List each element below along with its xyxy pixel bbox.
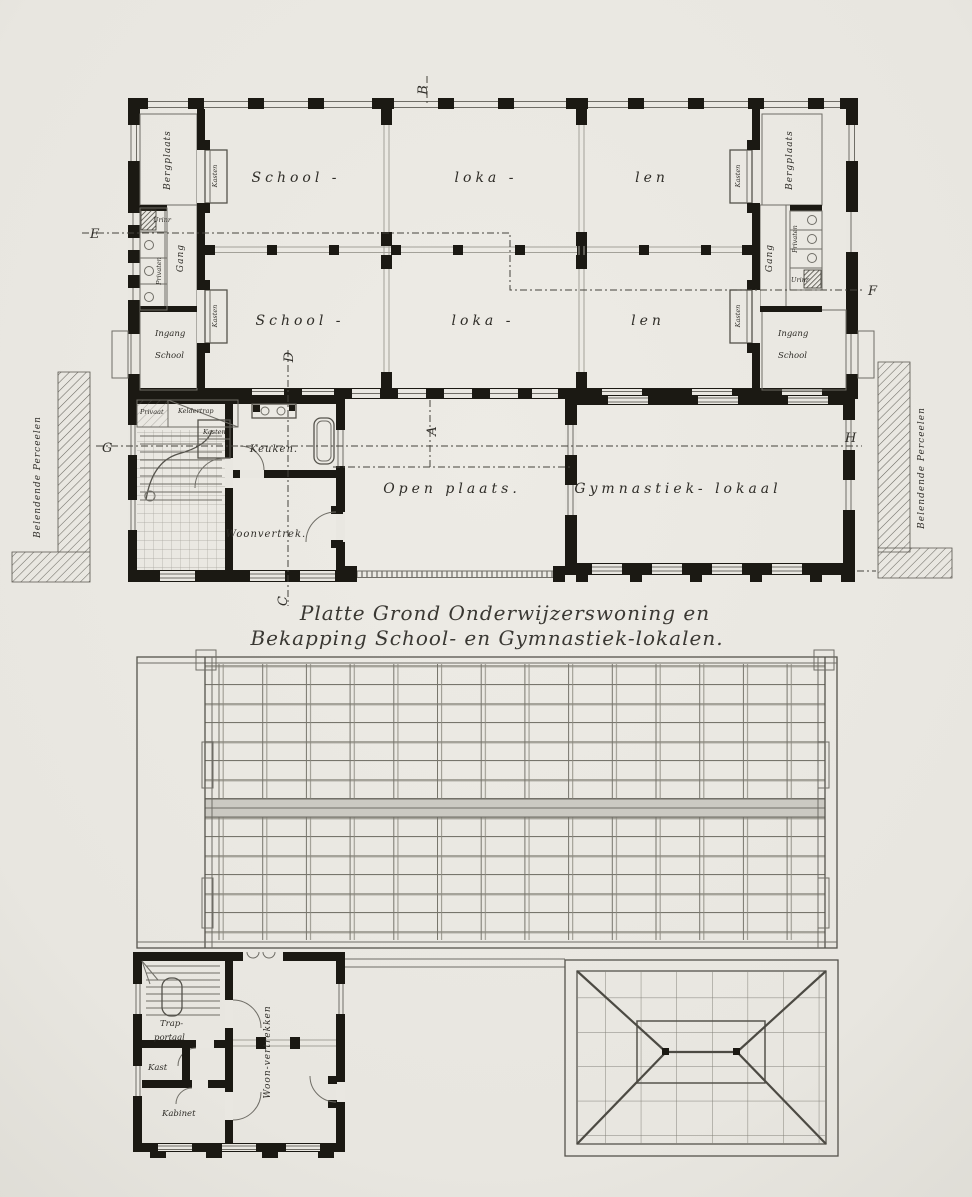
label-kasten-right-top: Kasten [734, 165, 742, 189]
label-open-plaats: Open plaats. [383, 481, 521, 497]
label-trapportaal-1: Trap- [160, 1019, 183, 1029]
marker-a: A [425, 426, 440, 436]
label-len-top: len [635, 170, 669, 186]
label-kasten-left-top: Kasten [211, 165, 219, 189]
label-kasten-right-bottom: Kasten [734, 305, 742, 329]
marker-e: E [89, 227, 100, 242]
label-ingang-left-1: Ingang [154, 329, 186, 339]
label-urinoir-right: Urinr [791, 276, 810, 284]
label-privaten-left: Privaten [155, 257, 163, 286]
plan-drawing: School - loka - len School - loka - len … [0, 0, 972, 1197]
label-keldertrap: Keldertrap [177, 407, 214, 415]
label-bergplaats-right: Bergplaats [785, 130, 795, 191]
label-school-bottom: School - [256, 313, 345, 329]
label-loka-top: loka - [455, 170, 518, 186]
label-ingang-right-1: Ingang [777, 329, 809, 339]
plan-title: Platte Grond Onderwijzerswoning en Bekap… [249, 601, 723, 650]
label-woonvertrek: Woonvertrek. [226, 529, 306, 540]
label-kasten-left-bottom: Kasten [211, 305, 219, 329]
label-gang-right: Gang [765, 244, 775, 272]
label-kabinet: Kabinet [161, 1109, 196, 1119]
hip-roof [565, 960, 838, 1156]
label-ingang-left-2: School [155, 351, 184, 361]
label-privaten-right: Privaten [791, 225, 799, 254]
label-urinoir-left: Urinr [153, 216, 172, 224]
label-belendende-left: Belendende Perceelen [33, 416, 43, 539]
title-line-1: Platte Grond Onderwijzerswoning en [299, 601, 710, 625]
label-kasten-dwelling: Kasten [202, 428, 226, 436]
label-privaat: Privaat [139, 408, 164, 416]
marker-h: H [844, 431, 857, 446]
marker-f: F [867, 284, 878, 299]
label-len-bottom: len [631, 313, 665, 329]
roof-plan [137, 650, 837, 967]
marker-d: D [282, 351, 297, 363]
label-school-top: School - [252, 170, 341, 186]
label-gymnastiek: Gymnastiek- lokaal [574, 481, 781, 497]
blueprint-scan: School - loka - len School - loka - len … [0, 0, 972, 1197]
label-bergplaats-left: Bergplaats [163, 130, 173, 191]
label-woonvertrekken: Woon-vertrekken [263, 1005, 273, 1098]
label-trapportaal-2: portaal [154, 1033, 185, 1043]
marker-b: B [416, 85, 431, 96]
label-loka-bottom: loka - [452, 313, 515, 329]
label-kast: Kast [147, 1063, 168, 1073]
marker-g: G [102, 441, 112, 456]
title-line-2: Bekapping School- en Gymnastiek-lokalen. [249, 626, 723, 650]
label-belendende-right: Belendende Perceelen [917, 407, 927, 530]
label-gang-left: Gang [176, 244, 186, 272]
label-ingang-right-2: School [778, 351, 807, 361]
marker-c: C [276, 596, 291, 606]
